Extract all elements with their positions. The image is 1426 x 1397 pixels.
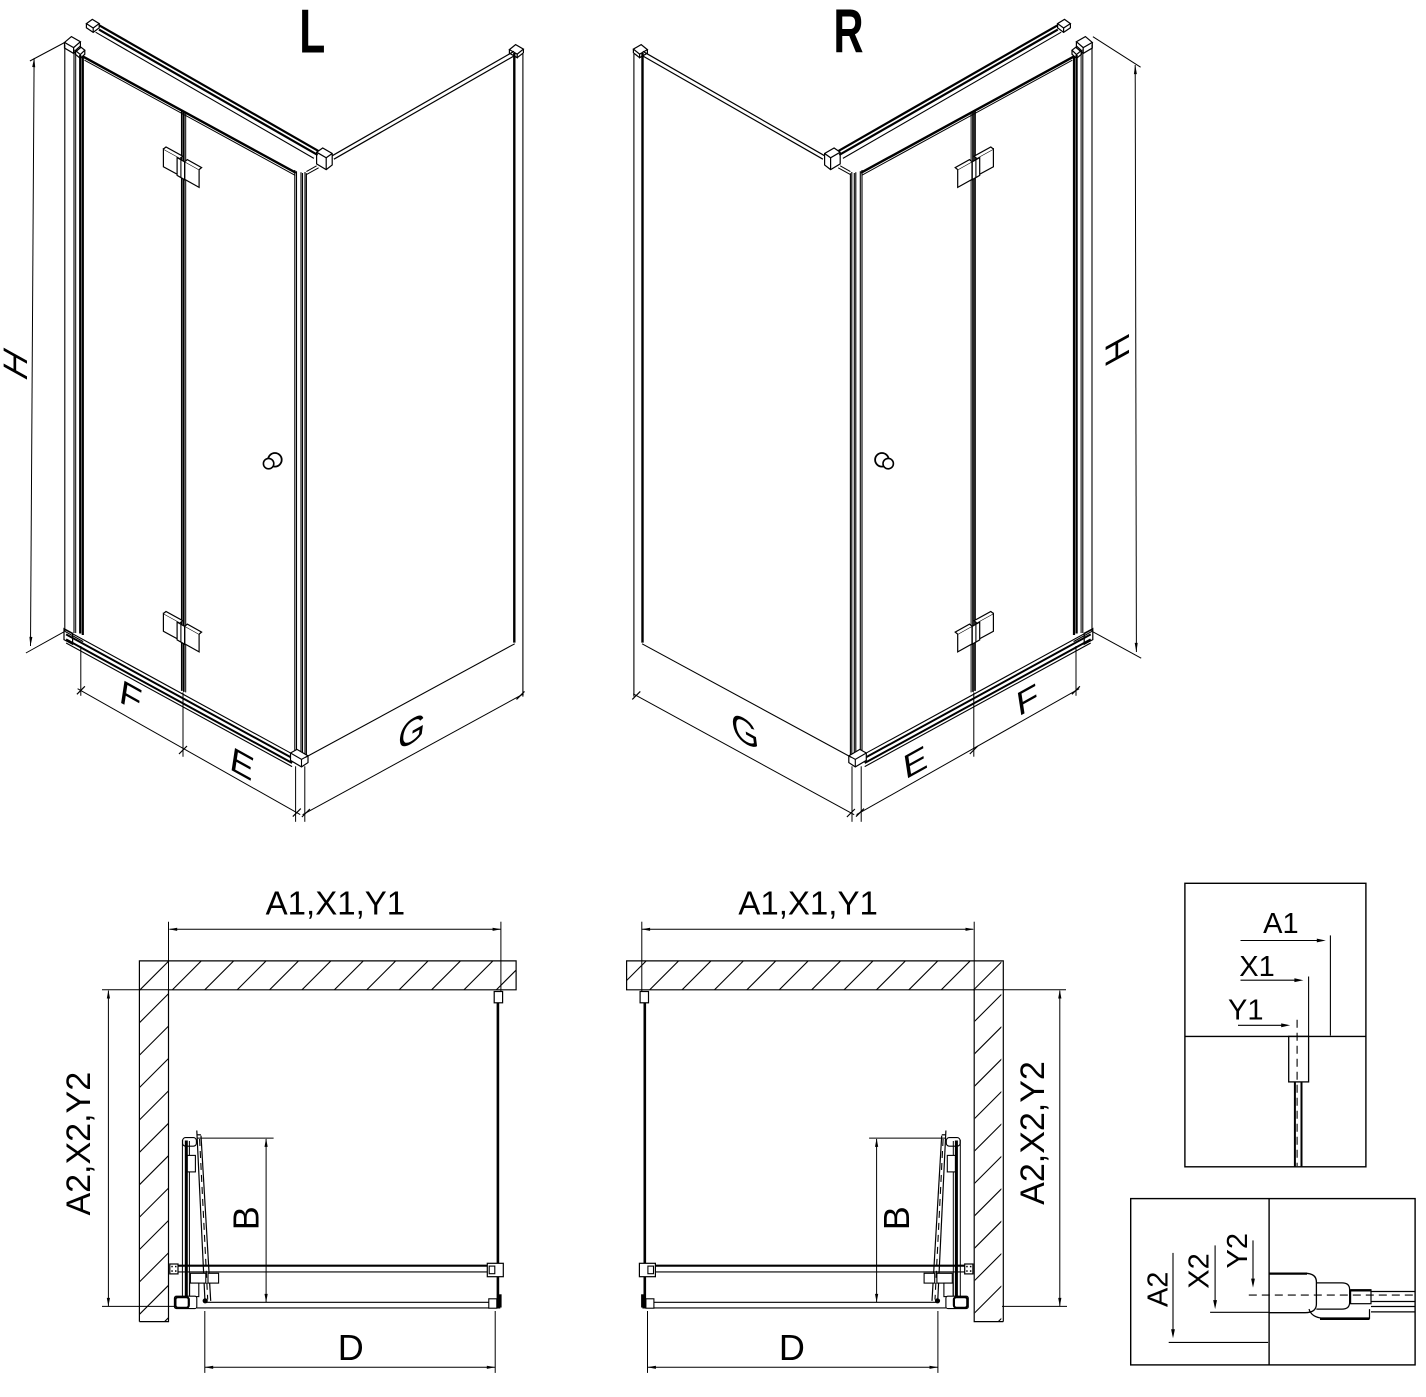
svg-text:A2,X2,Y2: A2,X2,Y2 <box>1014 1061 1052 1205</box>
svg-text:Y2: Y2 <box>1222 1233 1254 1268</box>
svg-text:Y1: Y1 <box>1228 995 1263 1027</box>
svg-text:D: D <box>779 1327 805 1368</box>
svg-text:X1: X1 <box>1239 951 1274 983</box>
svg-text:X2: X2 <box>1183 1253 1215 1288</box>
svg-text:D: D <box>338 1327 364 1368</box>
svg-text:B: B <box>876 1206 917 1230</box>
svg-text:L: L <box>299 0 325 66</box>
svg-text:A1,X1,Y1: A1,X1,Y1 <box>738 885 877 922</box>
svg-text:B: B <box>226 1206 267 1230</box>
svg-text:A2,X2,Y2: A2,X2,Y2 <box>60 1072 98 1216</box>
svg-text:A1,X1,Y1: A1,X1,Y1 <box>266 885 405 922</box>
svg-text:R: R <box>834 0 864 66</box>
svg-text:A1: A1 <box>1263 908 1298 940</box>
svg-text:A2: A2 <box>1143 1272 1175 1307</box>
